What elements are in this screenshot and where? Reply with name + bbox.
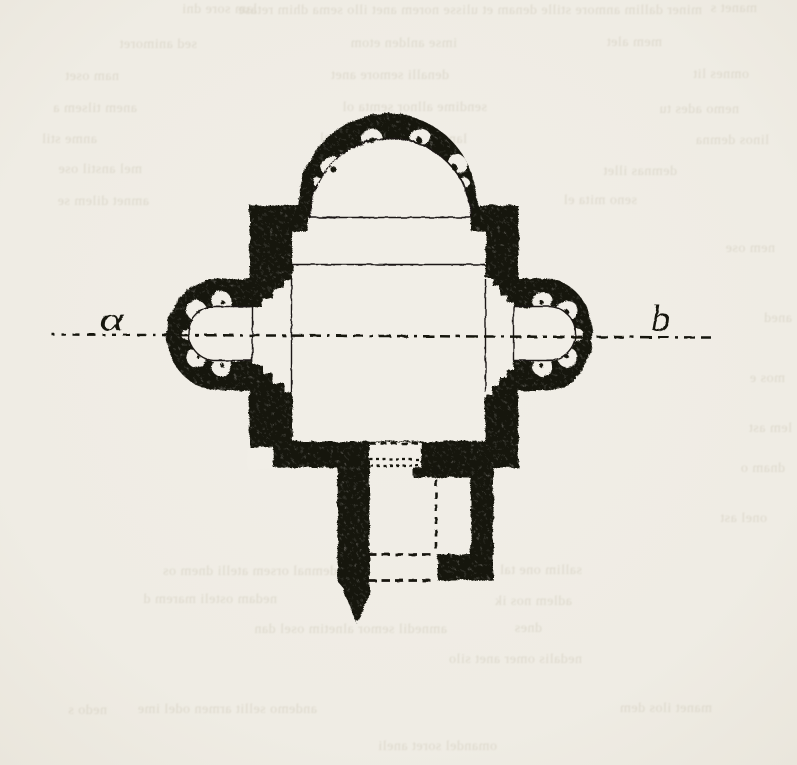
svg-text:nem ose: nem ose: [725, 241, 775, 256]
svg-text:seno mita el: seno mita el: [563, 193, 637, 208]
svg-text:nedam osteli marem d: nedam osteli marem d: [143, 592, 277, 607]
svg-text:anem tilsem a: anem tilsem a: [52, 101, 137, 116]
svg-text:nedalis omer anet silo: nedalis omer anet silo: [449, 652, 582, 667]
svg-text:nam oset: nam oset: [65, 69, 119, 84]
svg-text:imse anlden etom: imse anlden etom: [350, 36, 457, 51]
svg-text:linos demna: linos demna: [695, 133, 769, 148]
svg-text:nemo ades tu: nemo ades tu: [659, 102, 739, 117]
svg-text:demnas illet: demnas illet: [603, 164, 677, 179]
svg-text:dnam o: dnam o: [740, 461, 785, 476]
svg-text:manet ilos dem: manet ilos dem: [619, 701, 712, 716]
svg-text:lem ast: lem ast: [748, 421, 792, 436]
svg-text:sallim one tal: sallim one tal: [500, 563, 582, 578]
svg-text:omnes lit: omnes lit: [693, 67, 749, 82]
svg-text:sed animoret: sed animoret: [119, 37, 197, 52]
svg-text:amnet dilem se: amnet dilem se: [57, 194, 149, 209]
svg-text:onel ast: onel ast: [720, 511, 767, 526]
svg-text:mem alet: mem alet: [606, 35, 662, 50]
svg-text:denalli semore anet: denalli semore anet: [331, 68, 449, 83]
svg-text:omandel soret aneli: omandel soret aneli: [378, 739, 497, 754]
svg-text:andemo sellit armen odel ime: andemo sellit armen odel ime: [137, 702, 317, 717]
svg-text:b: b: [651, 298, 670, 340]
svg-text:nedo s: nedo s: [68, 703, 107, 718]
svg-text:lam sore dni: lam sore dni: [182, 2, 257, 17]
svg-text:sendime allnor semta ol: sendime allnor semta ol: [342, 100, 487, 115]
svg-text:dnes: dnes: [514, 621, 542, 636]
svg-text:demnal orsem atelli dnem os: demnal orsem atelli dnem os: [163, 564, 337, 579]
svg-text:mos e: mos e: [749, 371, 785, 386]
svg-text:anme stil: anme stil: [42, 132, 97, 147]
svg-text:α: α: [100, 301, 125, 338]
svg-text:adlem nos ik: adlem nos ik: [494, 594, 572, 609]
svg-text:mel anstil ose: mel anstil ose: [58, 162, 142, 177]
svg-text:amnedil semor alnetim osel dan: amnedil semor alnetim osel dan: [254, 622, 447, 637]
svg-text:miner dallim anmore stille den: miner dallim anmore stille denam et ulis…: [238, 3, 702, 18]
svg-text:aned: aned: [764, 311, 792, 326]
svg-text:manet s: manet s: [710, 1, 757, 16]
